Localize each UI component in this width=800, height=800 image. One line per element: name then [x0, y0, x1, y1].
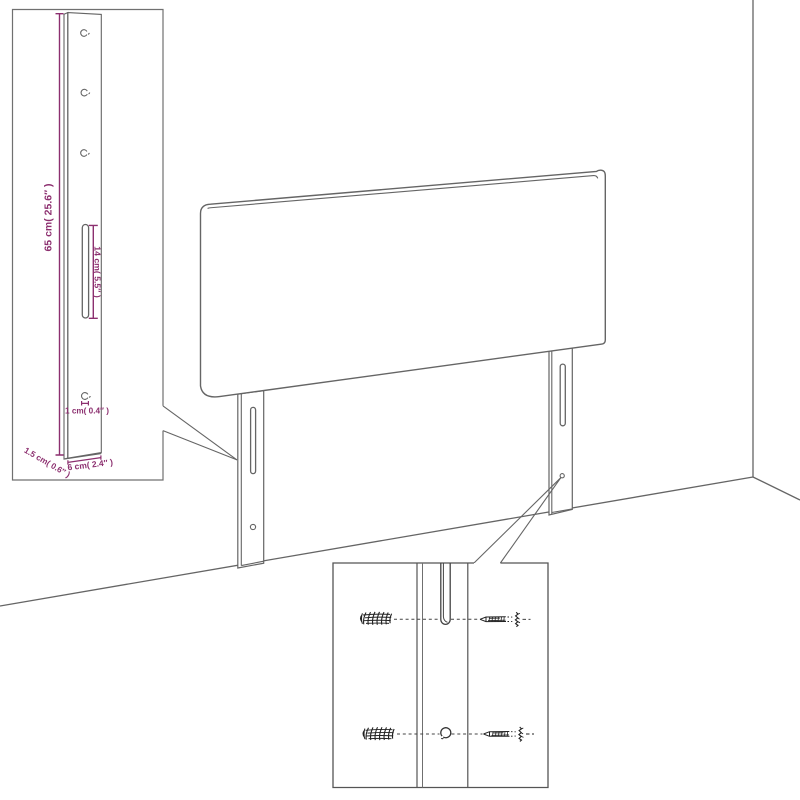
svg-text:1 cm( 0.4″ ): 1 cm( 0.4″ ) — [65, 406, 109, 415]
svg-text:14 cm( 5.5″ ): 14 cm( 5.5″ ) — [93, 246, 103, 298]
svg-text:65 cm( 25.6″ ): 65 cm( 25.6″ ) — [43, 183, 55, 251]
